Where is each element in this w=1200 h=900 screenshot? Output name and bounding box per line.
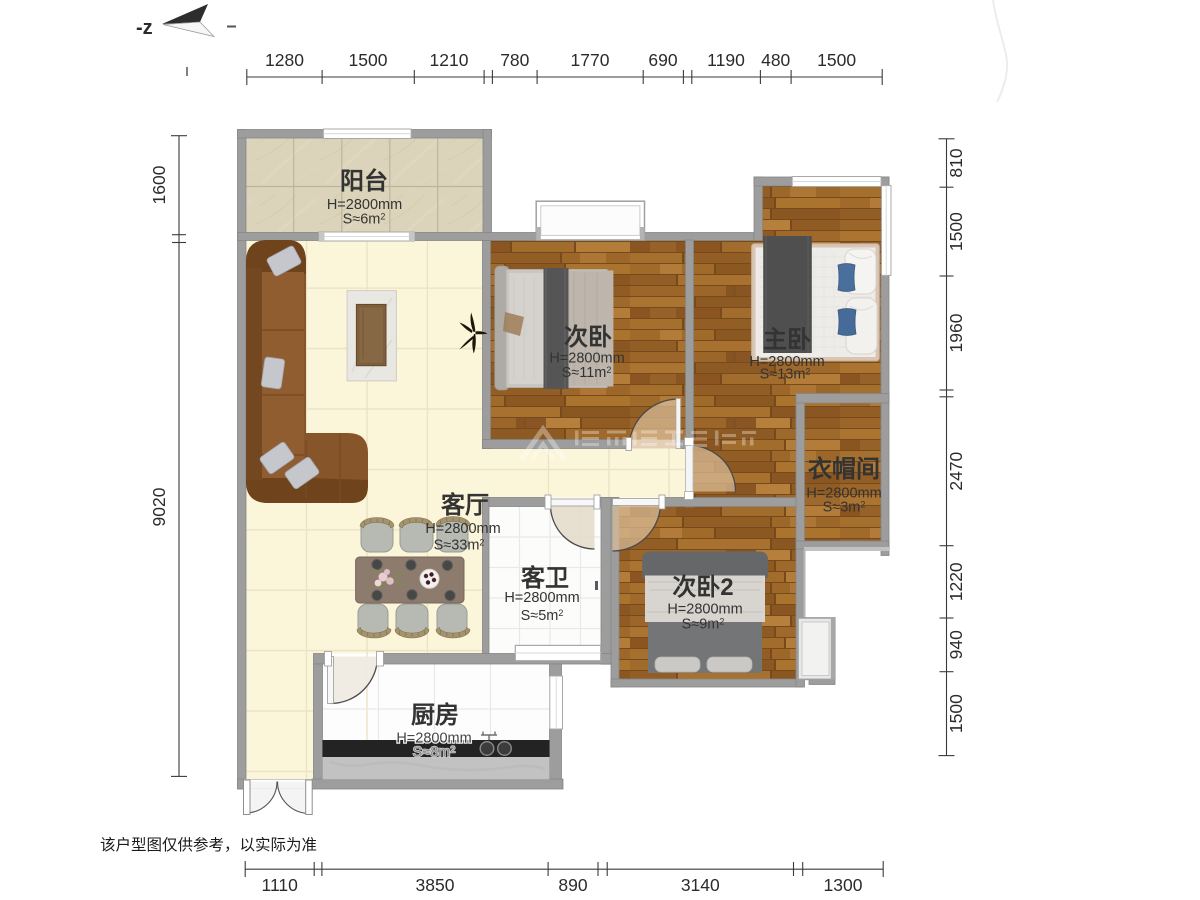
svg-text:1500: 1500 xyxy=(817,50,856,70)
svg-text:3850: 3850 xyxy=(416,875,455,895)
svg-text:1210: 1210 xyxy=(430,50,469,70)
svg-text:S≈9m2: S≈9m2 xyxy=(682,617,725,633)
svg-text:690: 690 xyxy=(648,50,677,70)
svg-text:客卫: 客卫 xyxy=(521,564,569,592)
svg-text:次卧2: 次卧2 xyxy=(672,574,733,601)
svg-text:1500: 1500 xyxy=(349,50,388,70)
svg-text:1190: 1190 xyxy=(707,50,745,70)
svg-text:1500: 1500 xyxy=(946,212,966,251)
svg-text:1770: 1770 xyxy=(571,50,610,70)
svg-text:S≈3m2: S≈3m2 xyxy=(823,500,866,516)
svg-text:该户型图仅供参考，以实际为准: 该户型图仅供参考，以实际为准 xyxy=(100,836,317,854)
svg-text:1220: 1220 xyxy=(946,562,966,601)
svg-text:9020: 9020 xyxy=(149,487,169,526)
svg-text:厨房: 厨房 xyxy=(411,701,459,729)
svg-text:S≈13m2: S≈13m2 xyxy=(760,367,811,383)
svg-text:H=2800mm: H=2800mm xyxy=(667,602,742,618)
svg-text:1300: 1300 xyxy=(824,875,863,895)
svg-text:H=2800mm: H=2800mm xyxy=(504,590,579,606)
svg-text:1280: 1280 xyxy=(265,50,304,70)
svg-text:890: 890 xyxy=(558,875,587,895)
svg-text:主卧: 主卧 xyxy=(763,327,811,354)
svg-text:1500: 1500 xyxy=(946,694,966,733)
svg-text:S≈6m2: S≈6m2 xyxy=(343,212,386,228)
svg-text:客厅: 客厅 xyxy=(441,491,489,519)
svg-text:S≈5m2: S≈5m2 xyxy=(521,608,564,624)
svg-text:780: 780 xyxy=(500,50,529,70)
svg-text:阳台: 阳台 xyxy=(340,167,388,195)
svg-text:衣帽间: 衣帽间 xyxy=(808,455,880,483)
svg-text:810: 810 xyxy=(946,148,966,177)
svg-text:H=2800mm: H=2800mm xyxy=(425,521,500,537)
svg-text:S≈8m2: S≈8m2 xyxy=(413,744,456,760)
svg-text:2470: 2470 xyxy=(946,451,966,490)
svg-text:1110: 1110 xyxy=(262,875,299,895)
svg-text:480: 480 xyxy=(761,50,790,70)
svg-text:940: 940 xyxy=(946,630,966,659)
svg-text:S≈11m2: S≈11m2 xyxy=(562,365,612,381)
svg-text:3140: 3140 xyxy=(681,875,720,895)
svg-text:1960: 1960 xyxy=(946,313,966,352)
svg-text:次卧: 次卧 xyxy=(564,324,612,351)
svg-text:1600: 1600 xyxy=(149,165,169,204)
svg-text:S≈33m2: S≈33m2 xyxy=(434,538,485,554)
svg-text:-z: -z xyxy=(136,17,153,39)
